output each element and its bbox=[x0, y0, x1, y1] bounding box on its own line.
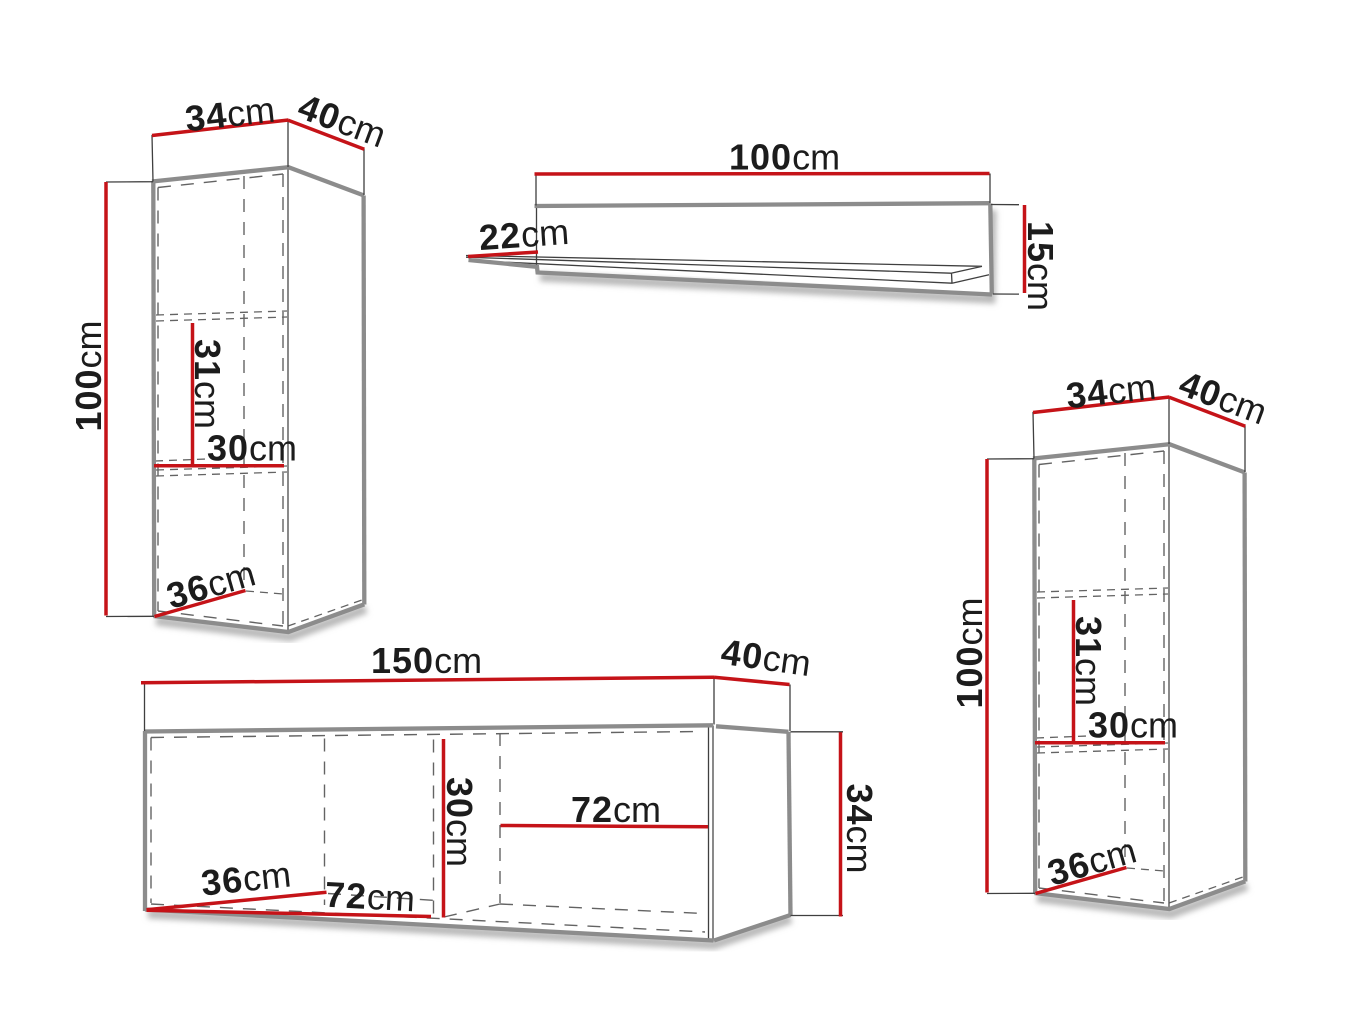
svg-text:100cm: 100cm bbox=[949, 597, 990, 708]
svg-text:72cm: 72cm bbox=[324, 874, 416, 920]
svg-text:15cm: 15cm bbox=[1020, 221, 1061, 311]
svg-text:31cm: 31cm bbox=[1068, 616, 1109, 706]
svg-text:31cm: 31cm bbox=[187, 339, 228, 429]
svg-text:100cm: 100cm bbox=[729, 137, 840, 178]
svg-text:100cm: 100cm bbox=[68, 320, 109, 431]
svg-text:30cm: 30cm bbox=[207, 428, 297, 469]
svg-text:30cm: 30cm bbox=[439, 777, 480, 867]
svg-text:150cm: 150cm bbox=[371, 640, 482, 681]
svg-text:30cm: 30cm bbox=[1088, 705, 1178, 746]
svg-text:72cm: 72cm bbox=[571, 789, 661, 830]
svg-text:34cm: 34cm bbox=[839, 783, 880, 873]
svg-text:22cm: 22cm bbox=[478, 211, 571, 258]
